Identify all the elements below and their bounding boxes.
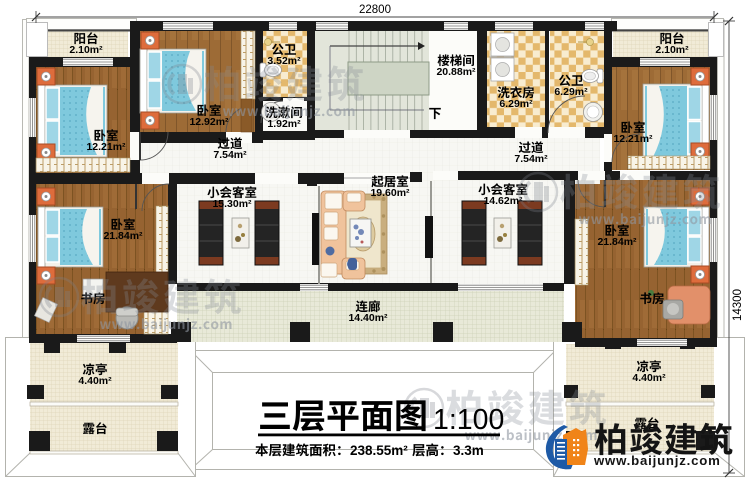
svg-text:www.baijunjz.com: www.baijunjz.com [593, 453, 721, 468]
svg-text:2.10m²: 2.10m² [655, 44, 689, 56]
svg-text:22800: 22800 [359, 4, 391, 16]
svg-text:12.92m²: 12.92m² [189, 116, 229, 128]
svg-text:6.29m²: 6.29m² [499, 98, 533, 110]
svg-text:1.92m²: 1.92m² [267, 118, 301, 130]
svg-text:3.52m²: 3.52m² [267, 55, 301, 67]
svg-text:21.84m²: 21.84m² [597, 236, 637, 248]
svg-text:6.29m²: 6.29m² [554, 86, 588, 98]
svg-text:19.60m²: 19.60m² [370, 187, 410, 199]
svg-text:2.10m²: 2.10m² [69, 44, 103, 56]
svg-text:4.40m²: 4.40m² [78, 375, 112, 387]
svg-text:14.62m²: 14.62m² [483, 195, 523, 207]
svg-text:14300: 14300 [732, 289, 744, 321]
svg-text:20.88m²: 20.88m² [436, 66, 476, 78]
svg-text:4.40m²: 4.40m² [632, 372, 666, 384]
svg-text:7.54m²: 7.54m² [213, 149, 247, 161]
svg-text:14.40m²: 14.40m² [348, 312, 388, 324]
svg-text:12.21m²: 12.21m² [86, 141, 126, 153]
svg-text:7.54m²: 7.54m² [514, 153, 548, 165]
svg-text:15.30m²: 15.30m² [212, 198, 252, 210]
svg-text:238.55m²: 238.55m² [350, 443, 408, 458]
svg-text:1:100: 1:100 [433, 404, 504, 436]
svg-text:21.84m²: 21.84m² [103, 230, 143, 242]
svg-text:3.3m: 3.3m [453, 443, 484, 458]
svg-text:12.21m²: 12.21m² [613, 133, 653, 145]
